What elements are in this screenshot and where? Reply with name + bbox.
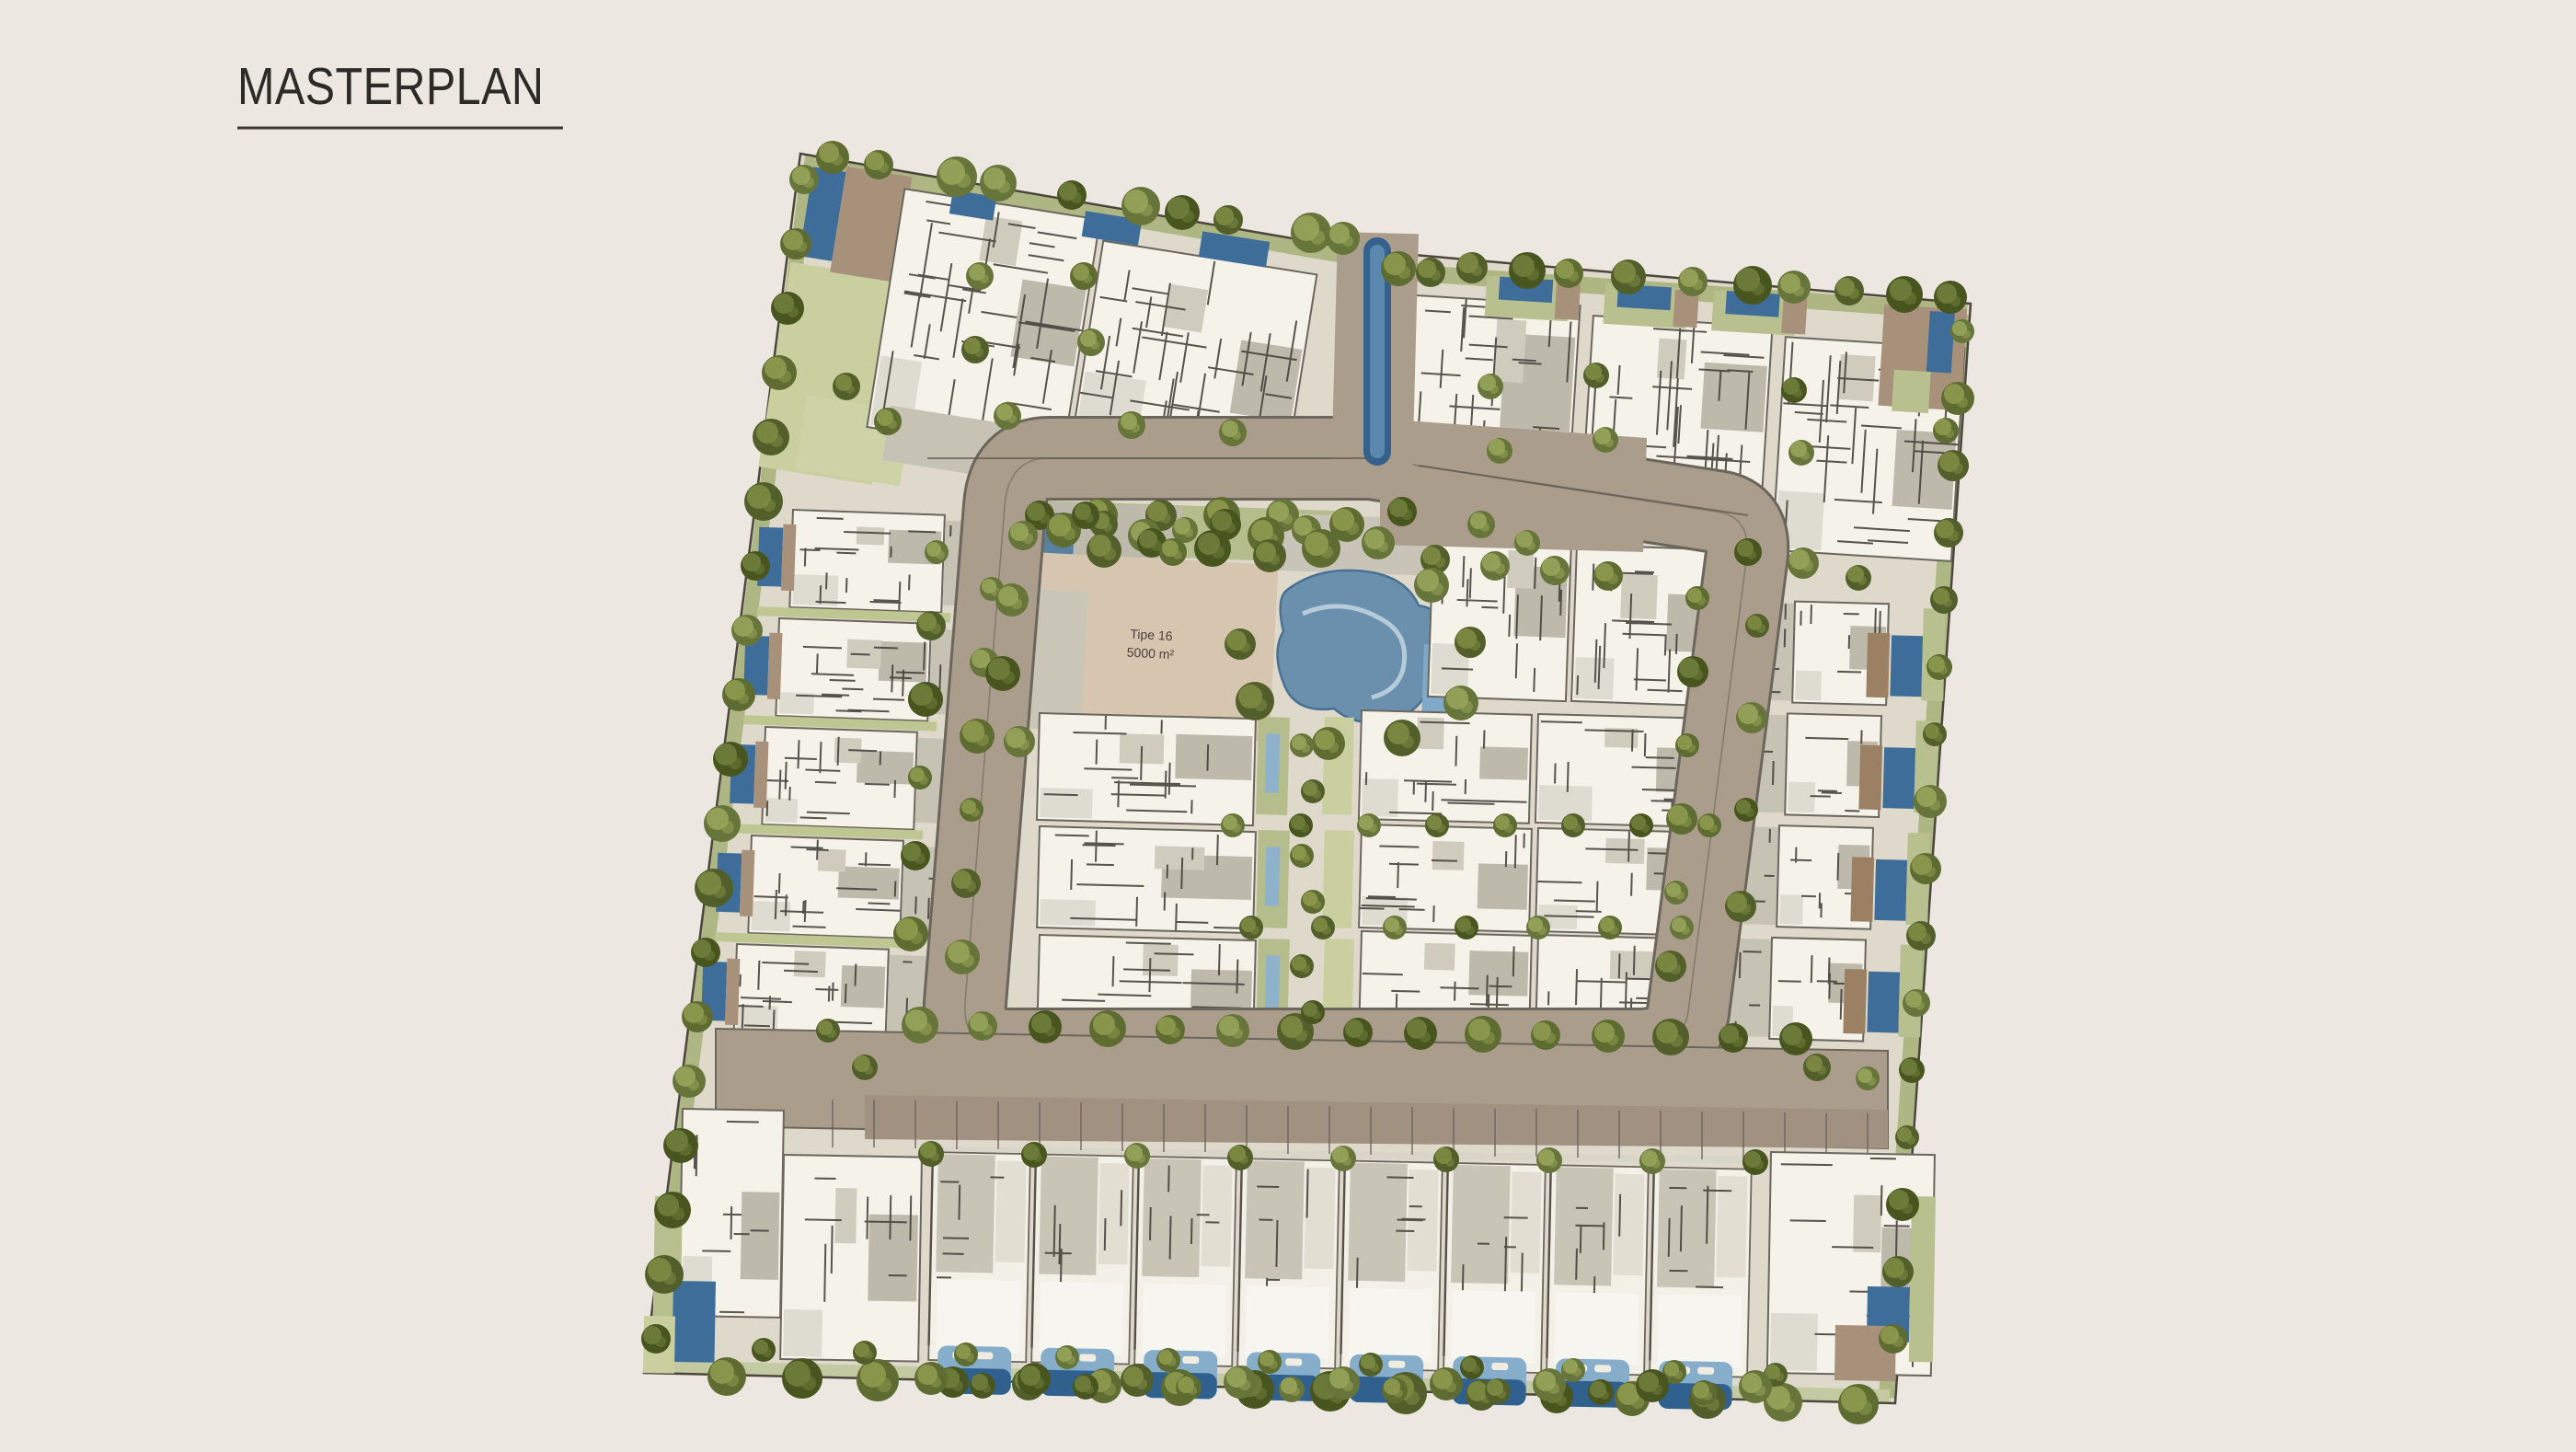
svg-text:MASTERPLAN: MASTERPLAN (237, 57, 544, 116)
svg-text:Tipe 16: Tipe 16 (1130, 627, 1173, 643)
svg-text:5000 m²: 5000 m² (1126, 645, 1174, 663)
